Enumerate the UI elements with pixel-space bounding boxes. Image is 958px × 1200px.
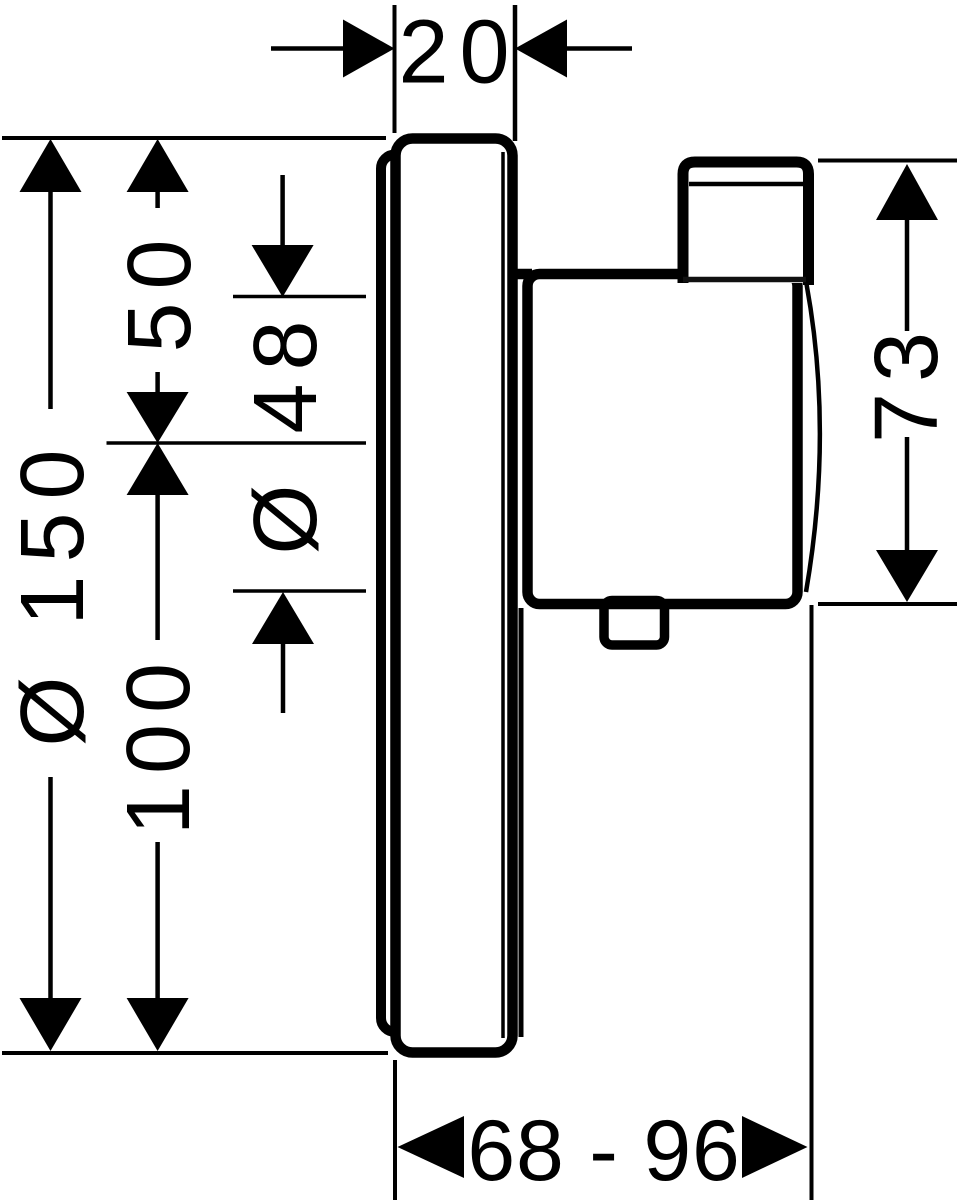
svg-text:50: 50	[110, 226, 210, 352]
svg-text:20: 20	[398, 3, 520, 103]
svg-text:100: 100	[109, 652, 209, 835]
svg-text:73: 73	[857, 321, 957, 443]
svg-text:68 - 96: 68 - 96	[467, 1103, 740, 1199]
svg-text:Ø 48: Ø 48	[236, 307, 336, 554]
svg-text:Ø 150: Ø 150	[3, 436, 103, 746]
